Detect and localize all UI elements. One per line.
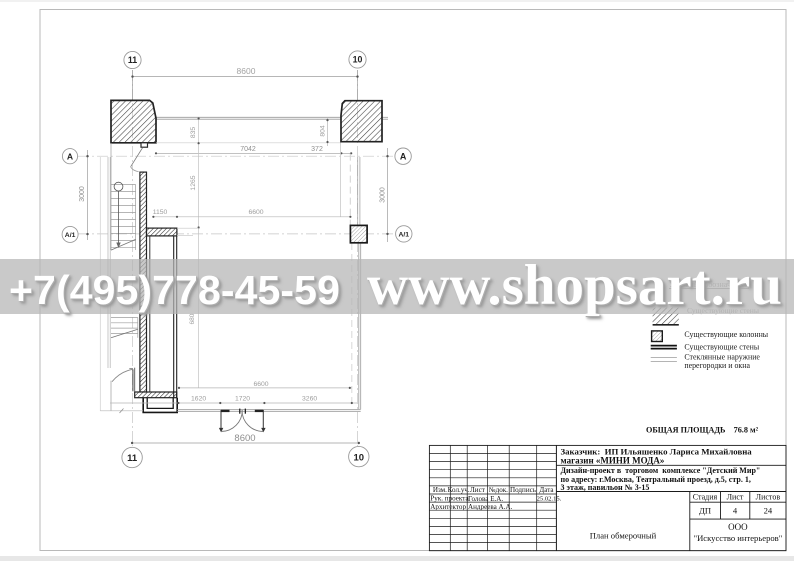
svg-text:Рук. проекта: Рук. проекта [430,495,469,503]
svg-text:835: 835 [190,127,197,139]
svg-text:магазин «МИНИ МОДА»: магазин «МИНИ МОДА» [561,456,665,466]
svg-text:Дата: Дата [539,486,554,494]
svg-text:Лист: Лист [727,493,744,502]
svg-text:A: A [400,152,407,162]
svg-text:24: 24 [764,506,773,516]
svg-text:A: A [67,151,73,161]
svg-text:"Искусство интерьеров": "Искусство интерьеров" [694,533,783,543]
svg-text:1150: 1150 [153,209,168,216]
svg-text:3000: 3000 [79,186,86,202]
svg-text:3000: 3000 [380,187,387,203]
svg-text:6600: 6600 [253,381,268,388]
svg-text:4: 4 [733,506,738,516]
svg-text:7042: 7042 [240,146,256,153]
svg-text:перегородки и окна: перегородки и окна [684,361,750,370]
svg-text:План обмерочный: План обмерочный [590,531,657,541]
svg-text:Архитектор: Архитектор [430,503,466,511]
svg-text:10: 10 [354,452,365,463]
svg-text:ОБЩАЯ ПЛОЩАДЬ 76.8 м²: ОБЩАЯ ПЛОЩАДЬ 76.8 м² [646,426,759,435]
svg-text:3260: 3260 [302,396,317,403]
svg-text:Андреева А.А.: Андреева А.А. [468,503,513,511]
svg-text:Существующие колонны: Существующие колонны [684,330,768,339]
svg-text:Кол.уч.: Кол.уч. [448,486,470,494]
svg-text:ДП: ДП [699,506,711,516]
svg-text:11: 11 [128,55,137,65]
svg-text:A/1: A/1 [399,232,410,239]
svg-text:Существующие стены: Существующие стены [684,342,759,351]
svg-text:6600: 6600 [248,209,263,216]
svg-text:1720: 1720 [235,396,250,403]
svg-text:Изм.: Изм. [433,486,447,494]
svg-text:Листов: Листов [756,493,781,502]
svg-text:Подпись: Подпись [510,486,537,494]
svg-text:Голова Е.А.: Голова Е.А. [468,495,503,503]
svg-text:11: 11 [127,453,138,464]
svg-text:680: 680 [189,313,196,324]
svg-text:1620: 1620 [191,396,206,403]
svg-text:10: 10 [353,55,363,65]
svg-text:372: 372 [311,146,323,153]
svg-text:8600: 8600 [234,433,255,444]
svg-text:№док.: №док. [489,486,508,494]
svg-text:25.02.15.: 25.02.15. [537,495,562,502]
svg-text:1265: 1265 [190,175,197,190]
svg-text:ООО: ООО [728,522,748,532]
svg-text:804: 804 [320,125,327,137]
svg-text:Лист: Лист [470,486,485,494]
svg-text:3 этаж, павильон № 3-15: 3 этаж, павильон № 3-15 [561,483,650,492]
svg-text:Стадия: Стадия [693,493,718,502]
svg-text:8600: 8600 [237,66,256,76]
svg-text:A/1: A/1 [65,232,76,239]
